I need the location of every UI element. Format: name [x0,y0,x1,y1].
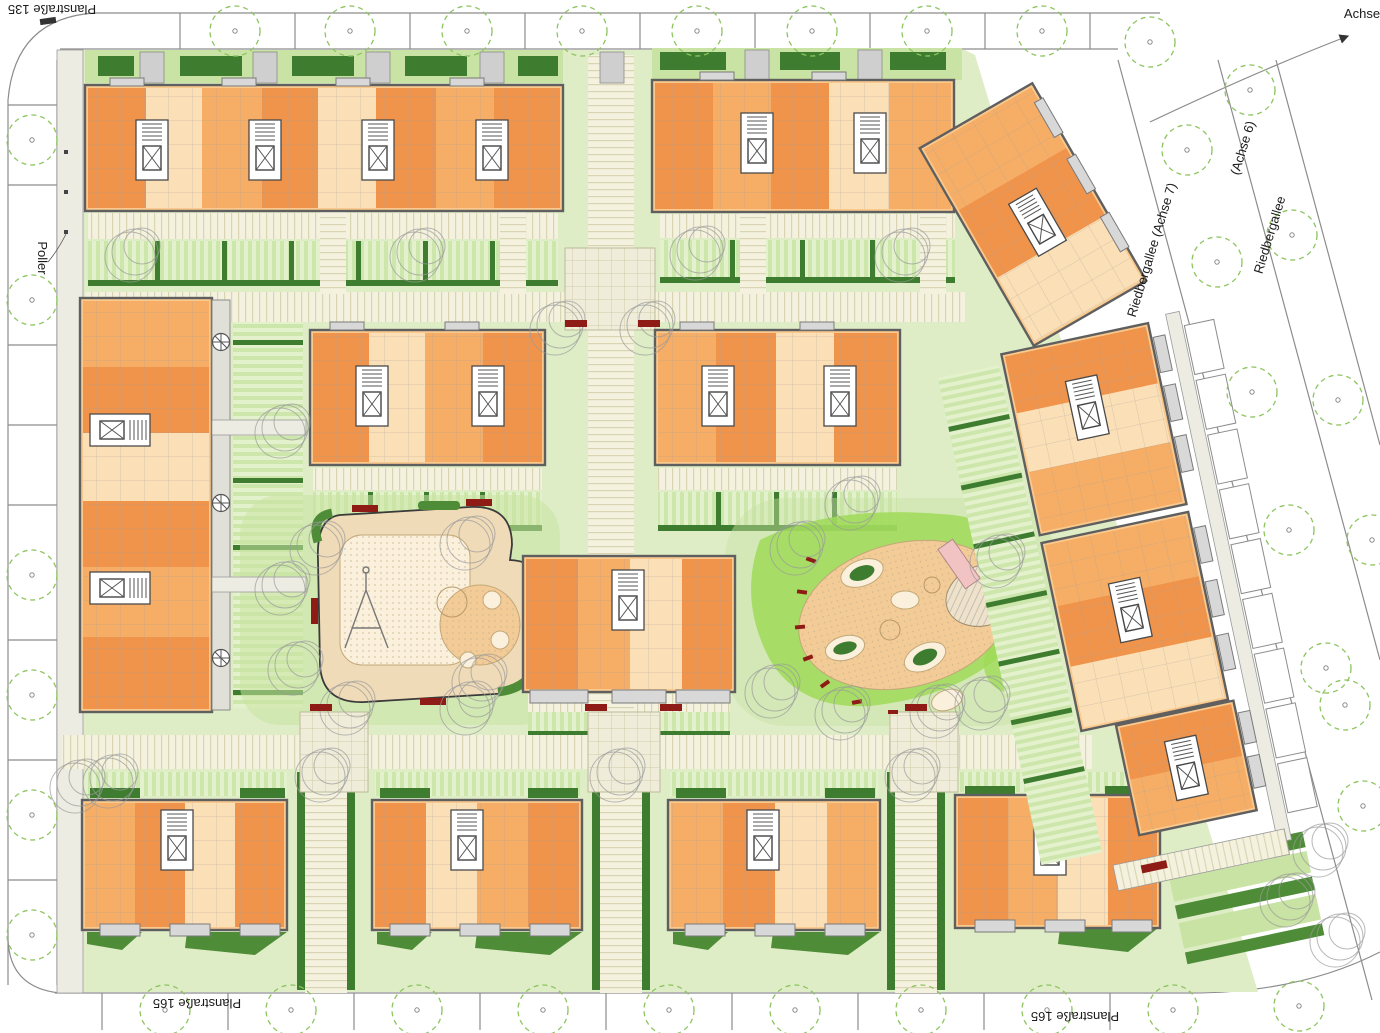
site-plan: Planstraße 135 Achse Riedbergallee (Achs… [0,0,1380,1033]
plaza-west [300,712,368,792]
label-bollard: Poller [35,241,50,275]
label-avenue-name6: Riedbergallee [1251,194,1289,275]
spiral-stair-icon [213,334,230,351]
spiral-stair-icon [213,650,230,667]
axis-arrow [1150,36,1348,122]
spiral-stair-icon [213,495,230,512]
building-ne-slab [652,72,954,212]
site-plan-drawing: Planstraße 135 Achse Riedbergallee (Achs… [0,0,1380,1033]
label-street-bottom-right: Planstraße 165 [1031,1009,1119,1024]
building-south-3 [668,800,880,936]
building-center-west [310,322,545,465]
crossing-marker [40,17,57,25]
building-nw-slab [85,78,563,211]
building-center-south [523,556,735,703]
label-street-bottom-left: Planstraße 165 [153,996,241,1011]
building-south-2 [372,800,582,936]
label-avenue-axis7: Riedbergallee (Achse 7) [1124,181,1179,319]
label-street-top: Planstraße 135 [8,2,96,17]
label-avenue-axis6: (Achse 6) [1227,119,1258,177]
bench [352,505,378,512]
label-axis: Achse [1344,6,1380,21]
plaza-central [565,248,655,330]
building-center-east [655,322,900,465]
building-south-1 [82,800,287,936]
